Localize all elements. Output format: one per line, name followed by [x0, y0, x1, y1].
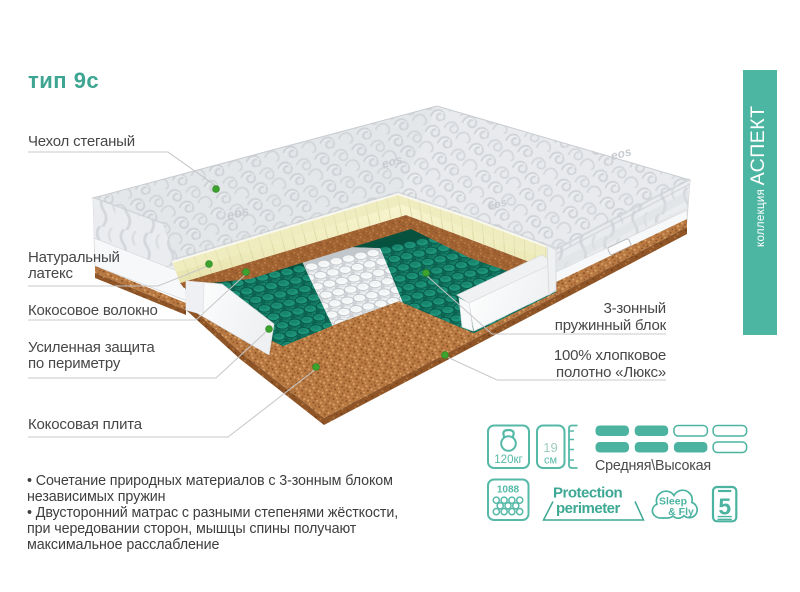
svg-text:см: см: [544, 455, 557, 467]
svg-text:1088: 1088: [497, 485, 520, 496]
svg-text:& Fly: & Fly: [668, 506, 694, 518]
svg-text:perimeter: perimeter: [556, 500, 621, 517]
svg-text:19: 19: [543, 440, 557, 455]
svg-text:5: 5: [718, 494, 731, 520]
svg-text:Protection: Protection: [553, 485, 623, 502]
svg-text:eos: eos: [609, 144, 633, 163]
svg-text:120кг: 120кг: [494, 454, 522, 466]
